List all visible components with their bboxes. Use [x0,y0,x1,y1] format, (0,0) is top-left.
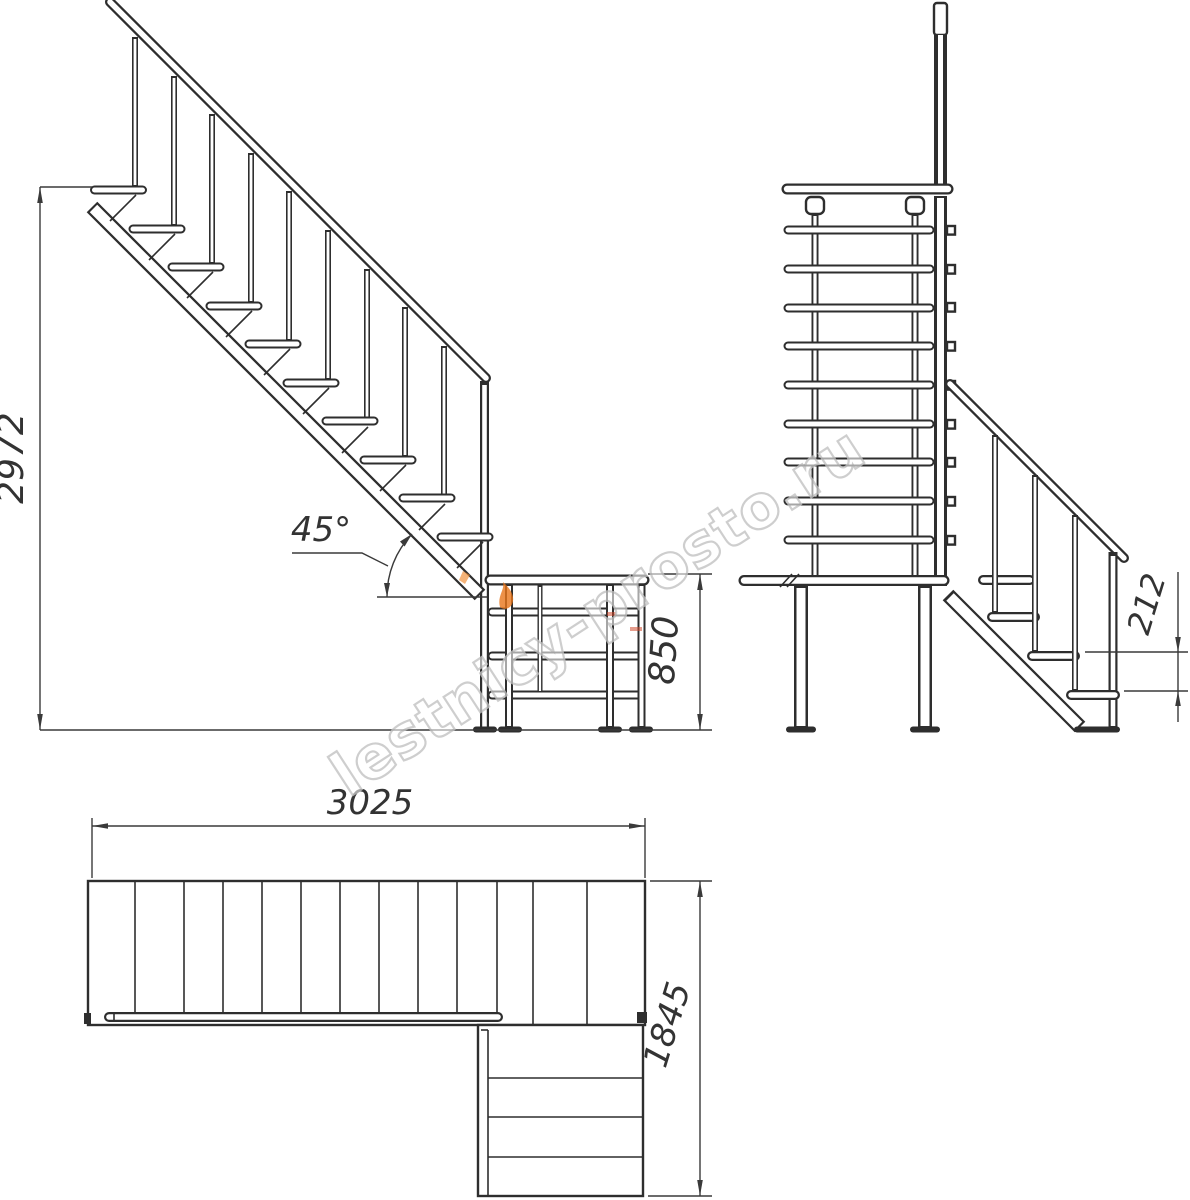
dim-total-height: 2972 [0,187,92,730]
plan-view: 3025 1845 [84,783,712,1196]
plan-upper-flight-outline [88,881,645,1025]
dim-total-height-label: 2972 [0,412,32,504]
rail-bracket-right [906,197,924,214]
lower-flight [948,384,1124,730]
platform [744,574,944,587]
newel-post [934,3,947,192]
dim-angle: 45° [291,510,487,597]
dim-rail-height-label: 850 [642,614,688,685]
drawing-canvas: 2972 45° 850 [0,0,1190,1200]
watermark: lestnicy-prosto.ru [319,414,878,811]
handrail-upper-flight [110,2,486,378]
rail-bracket-left [806,197,824,214]
dim-angle-label: 45° [291,510,351,550]
stair-technical-drawing: 2972 45° 850 [0,0,1190,1200]
plan-lower-flight [478,1025,643,1196]
dim-step-rise-label: 212 [1119,569,1173,639]
front-elevation-view: 212 [744,3,1188,730]
dim-width: 1845 [636,881,712,1196]
support-legs [789,586,937,730]
watermark-text: lestnicy-prosto.ru [319,414,878,811]
